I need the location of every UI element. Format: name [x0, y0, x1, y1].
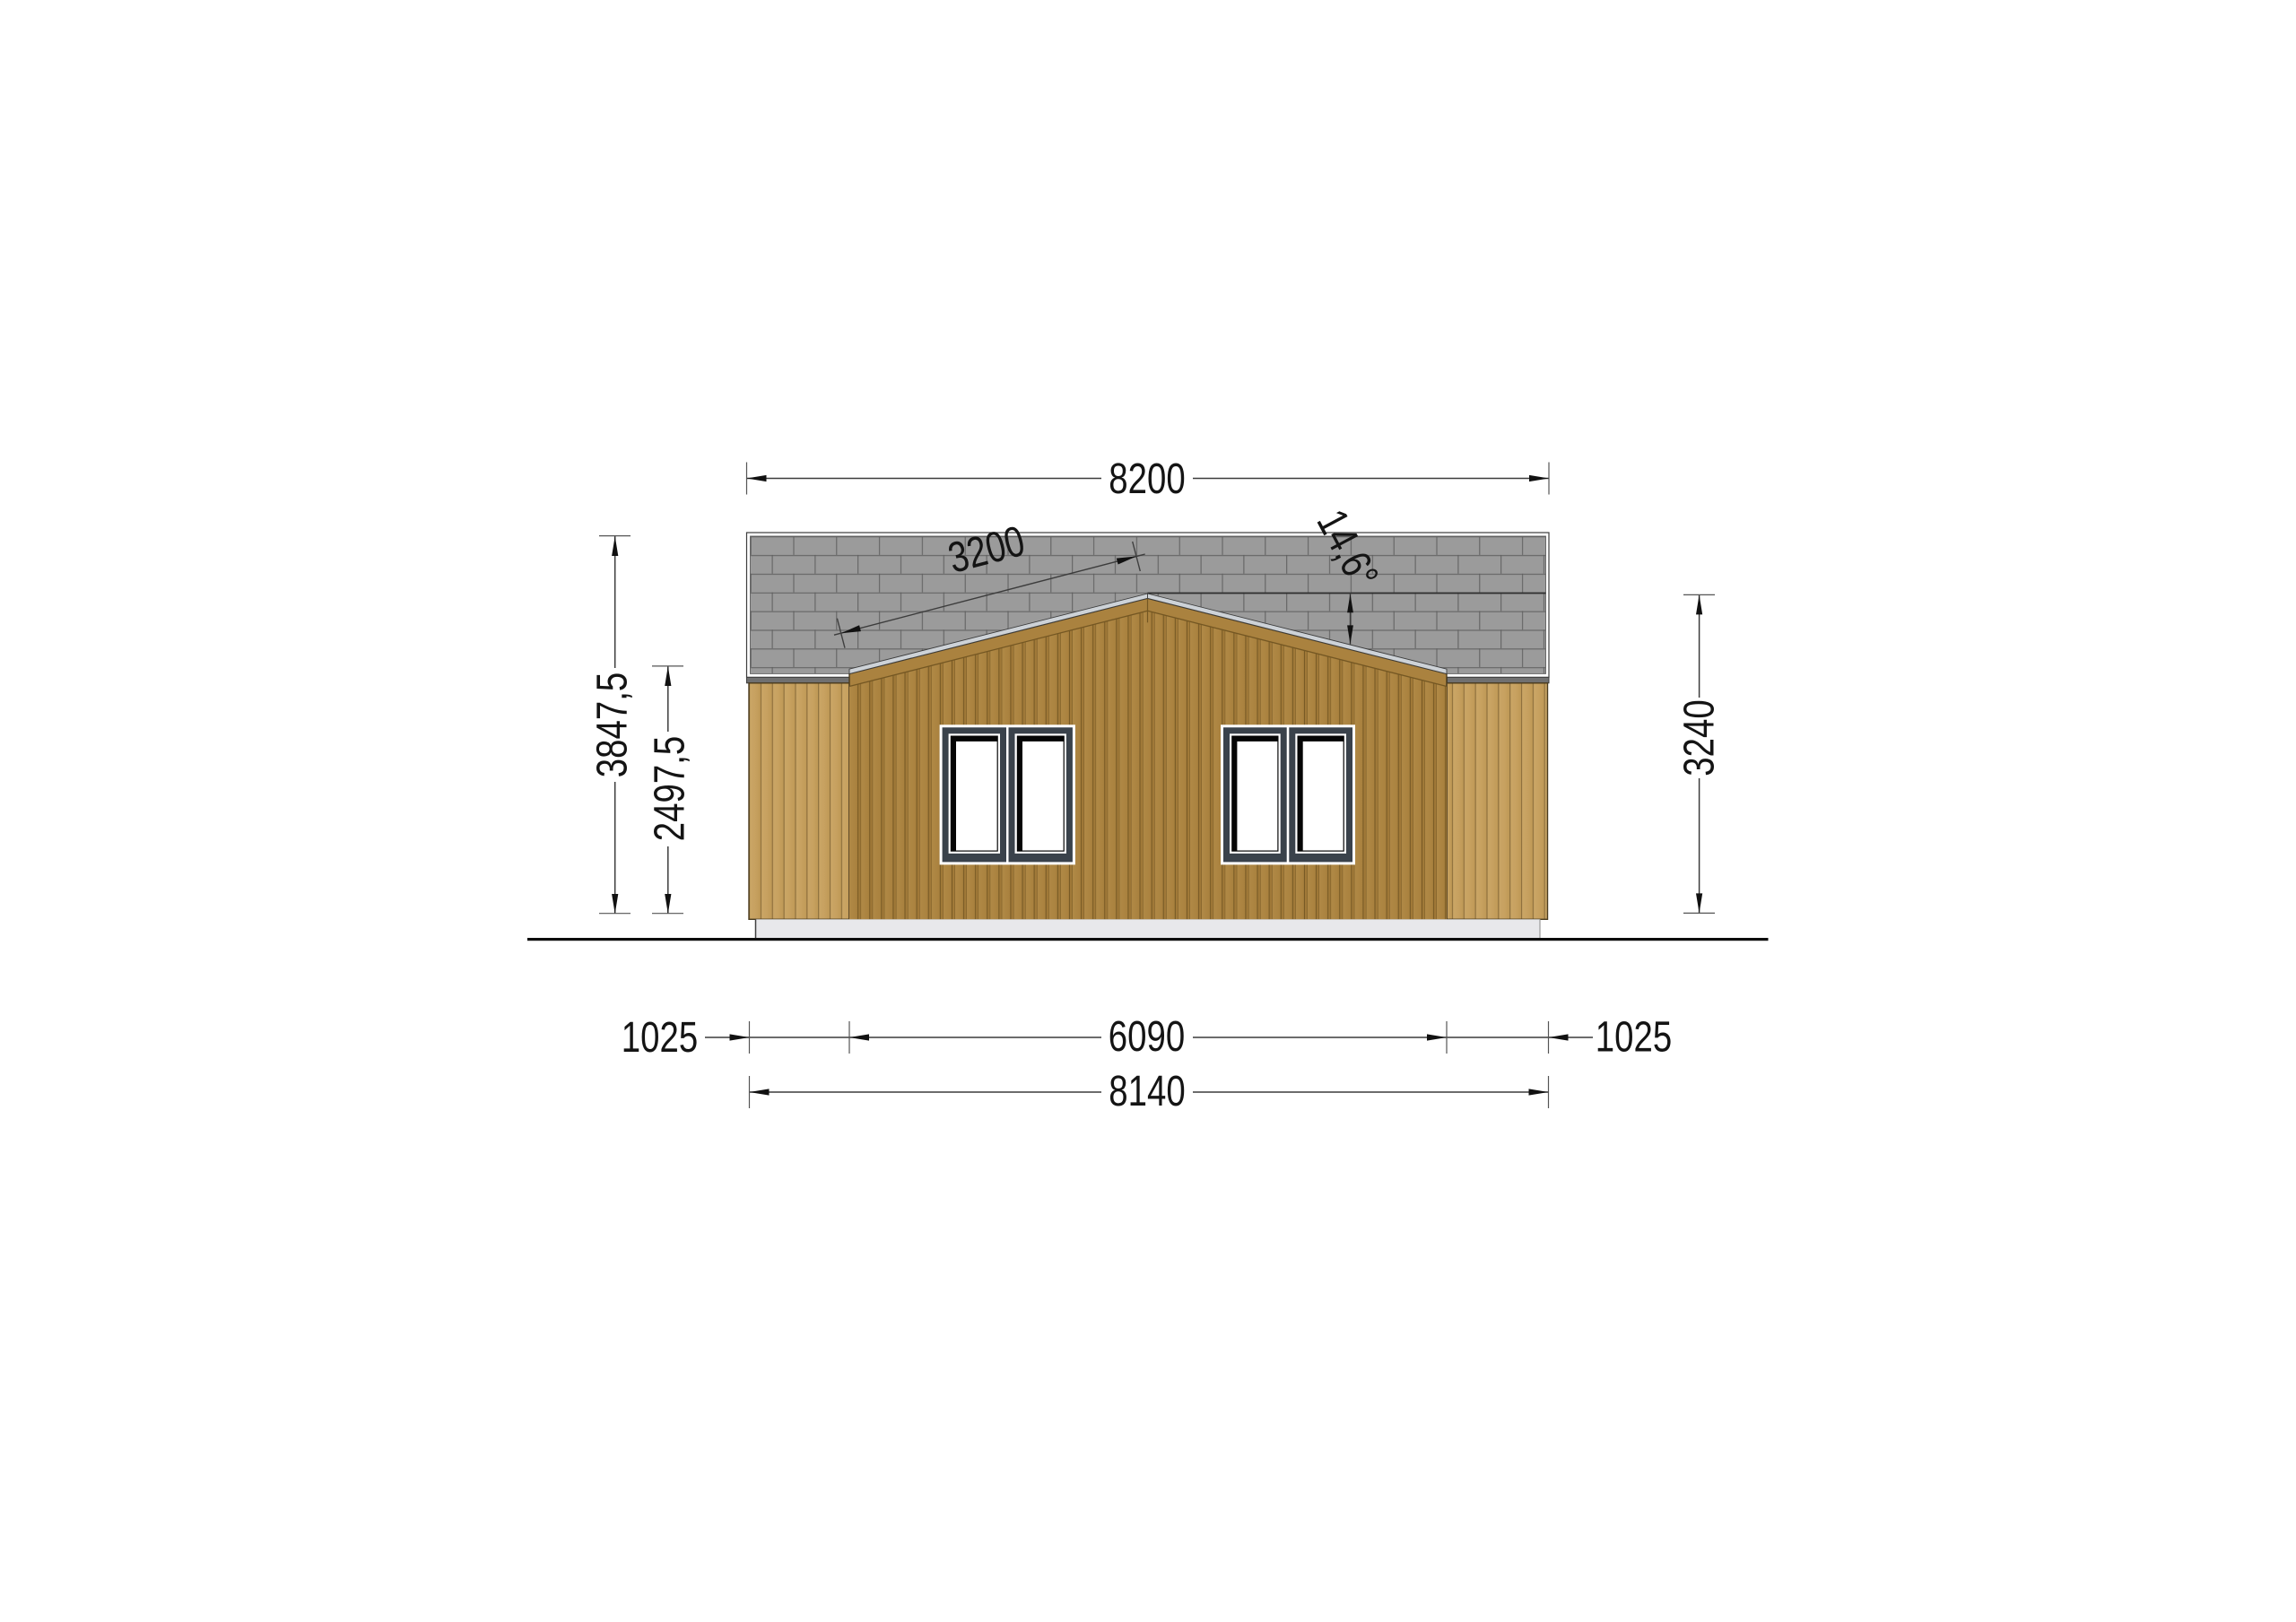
svg-text:8200: 8200 — [1109, 455, 1185, 503]
svg-text:1025: 1025 — [622, 1014, 698, 1062]
svg-text:1025: 1025 — [1596, 1013, 1672, 1061]
svg-text:6090: 6090 — [1109, 1013, 1185, 1061]
svg-text:3240: 3240 — [1675, 699, 1723, 776]
svg-text:2497,5: 2497,5 — [646, 736, 693, 841]
svg-text:3847,5: 3847,5 — [589, 672, 637, 777]
svg-text:8140: 8140 — [1109, 1068, 1185, 1115]
